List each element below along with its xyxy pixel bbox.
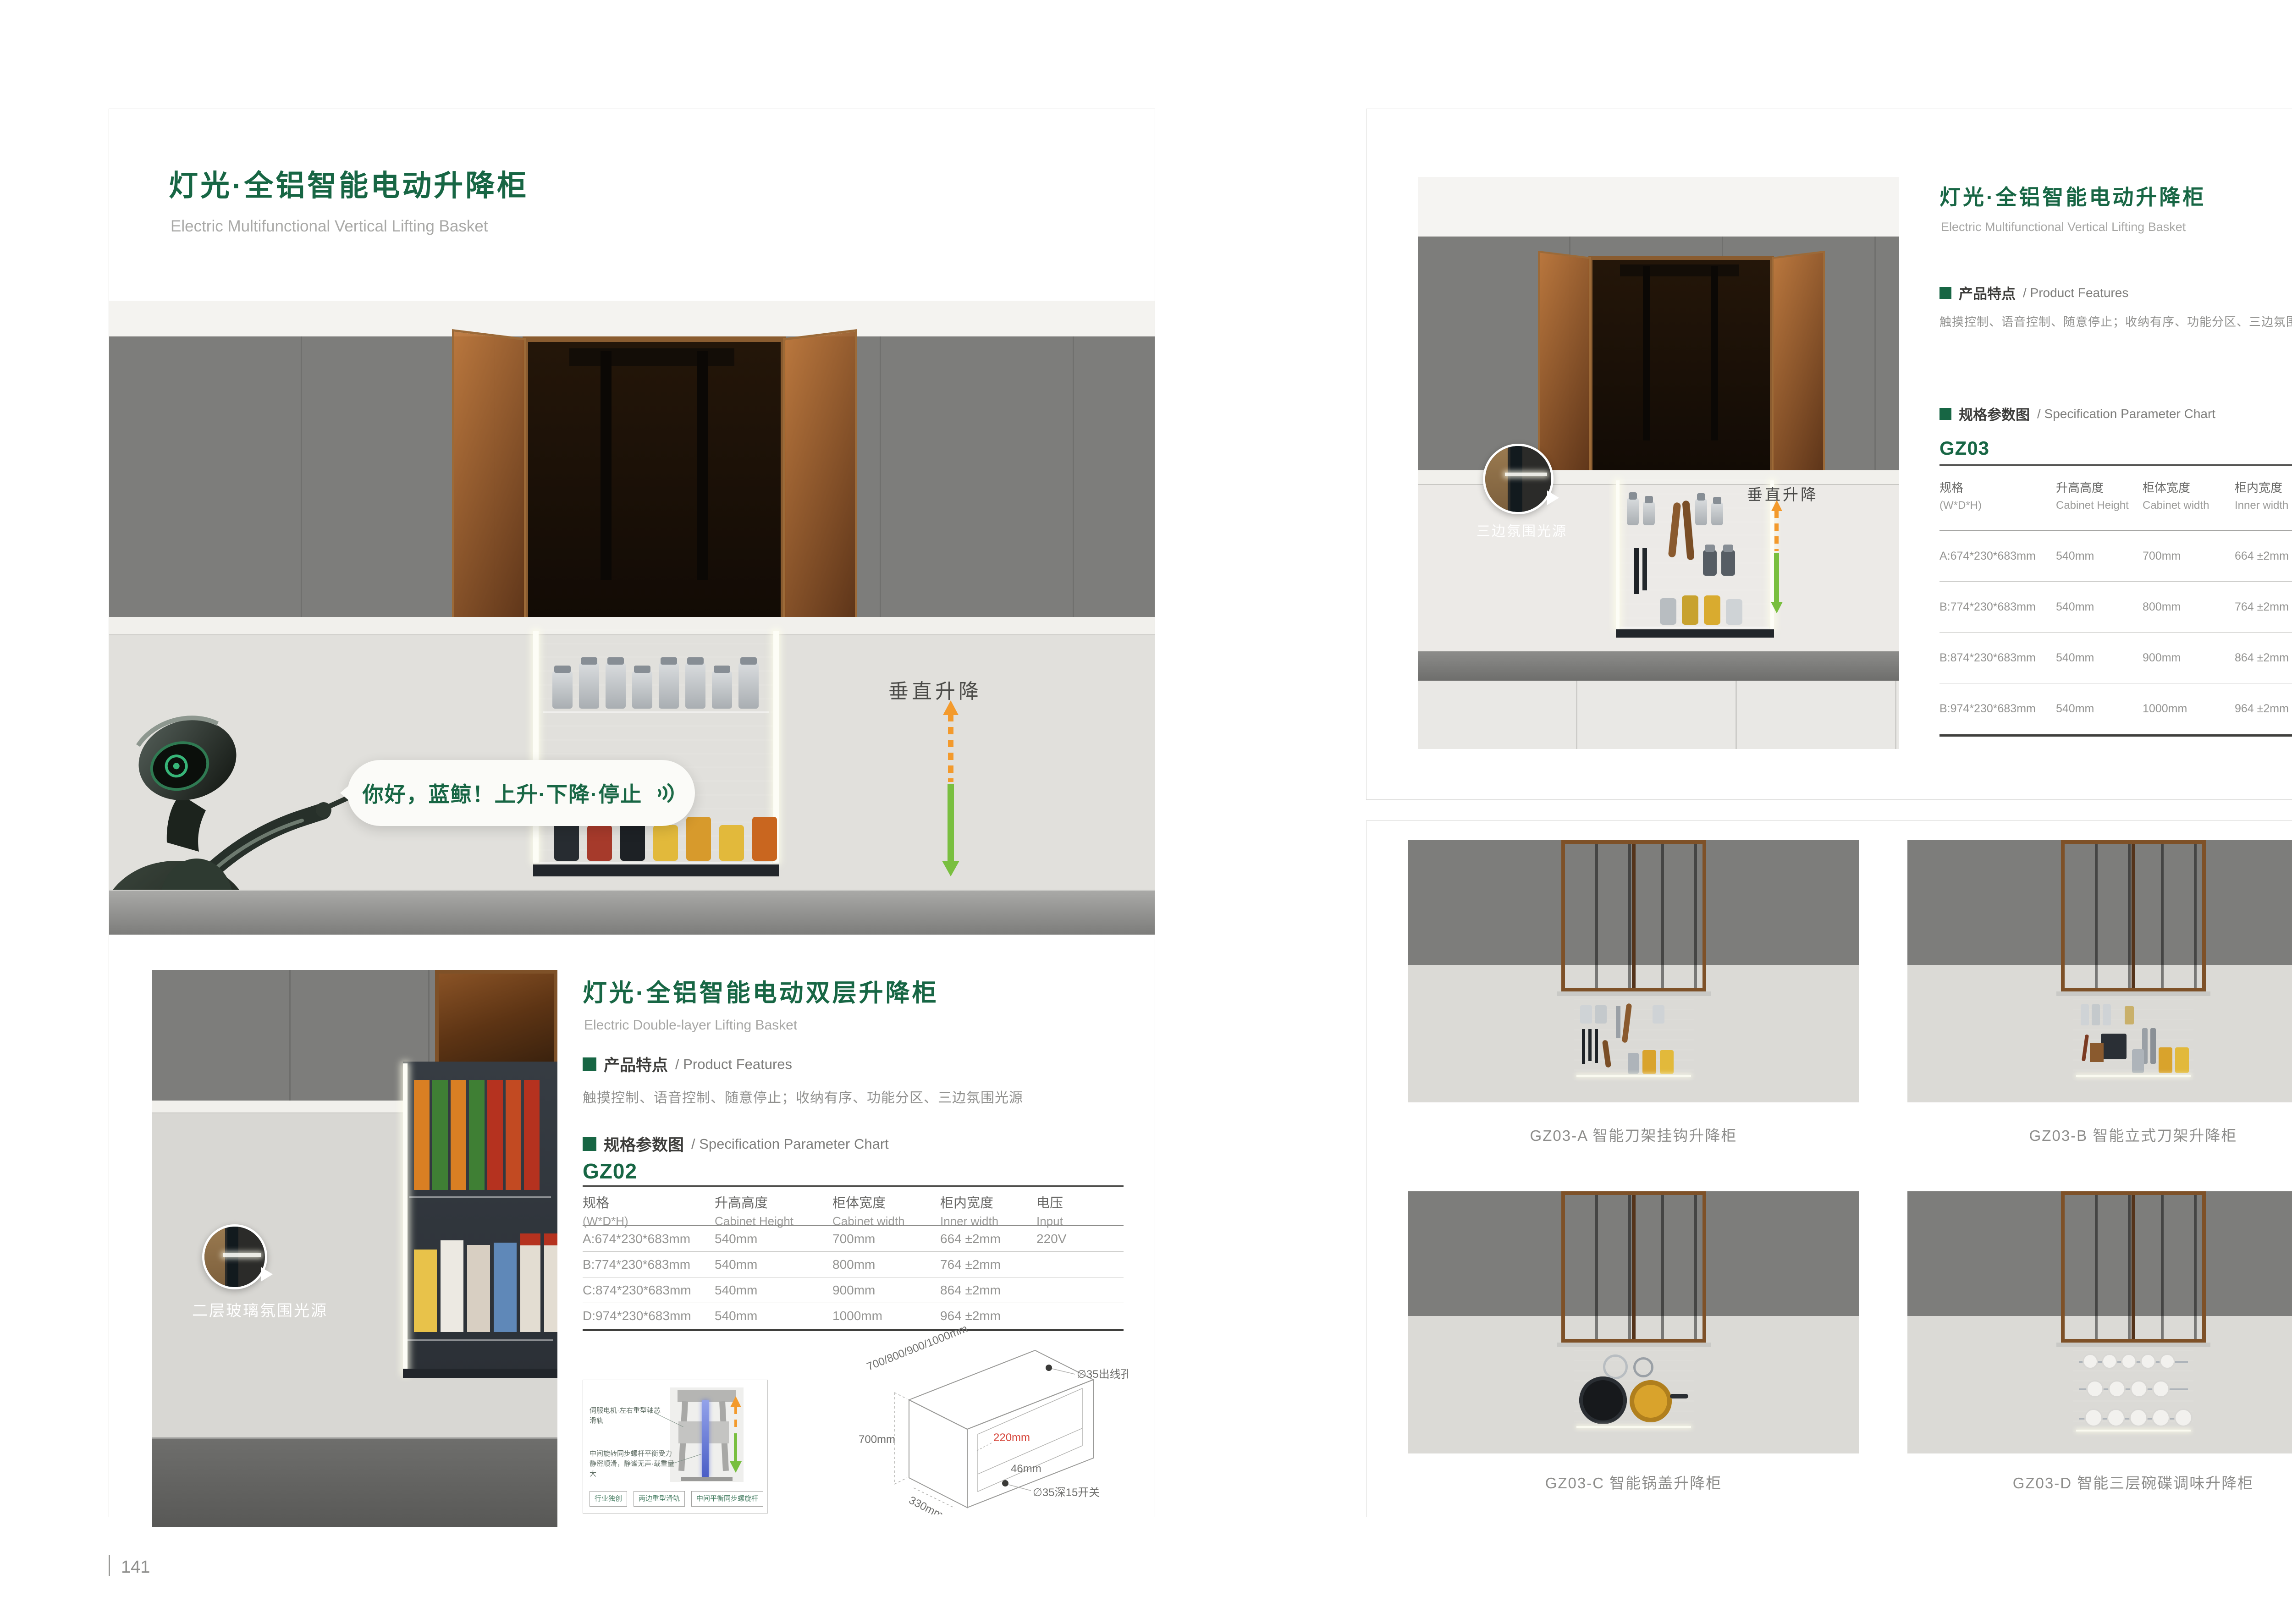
plate-icon bbox=[2160, 1354, 2175, 1369]
mech-tags: 行业独创 两边重型滑轨 中间平衡同步螺旋杆 bbox=[590, 1491, 763, 1507]
col-header: 升高高度Cabinet Height bbox=[2056, 479, 2143, 512]
pot-icon bbox=[719, 825, 744, 861]
plate-icon bbox=[2108, 1380, 2126, 1398]
jar-icon bbox=[685, 663, 705, 709]
pan-handle bbox=[1670, 1394, 1688, 1398]
dim-gap-label: 46mm bbox=[1011, 1463, 1041, 1475]
lift-column bbox=[1711, 266, 1718, 440]
glass-shelf bbox=[543, 711, 769, 713]
juice-carton bbox=[432, 1080, 448, 1190]
table-row: B:974*230*683mm540mm1000mm964 ±2mm bbox=[1939, 683, 2292, 734]
mech-label-bottom-1: 中间旋转同步螺杆平衡受力 bbox=[590, 1449, 672, 1459]
knife-icon bbox=[1634, 548, 1639, 594]
grinder-icon bbox=[1703, 550, 1717, 576]
jar-icon bbox=[1627, 498, 1639, 525]
thumb-basket bbox=[403, 1062, 557, 1378]
callout-tail bbox=[261, 1267, 280, 1282]
juice-carton bbox=[520, 1233, 540, 1332]
dim-depth-label: 330mm bbox=[907, 1494, 945, 1514]
pot-icon bbox=[1660, 598, 1676, 625]
spec-header: 规格参数图 / Specification Parameter Chart bbox=[583, 1132, 889, 1156]
photo-callout-label: 三边氛围光源 bbox=[1477, 520, 1567, 540]
juice-row bbox=[414, 1075, 540, 1190]
right-page-bottom: GZ03-A 智能刀架挂钩升降柜 GZ03-B 智能立式刀架升降柜 bbox=[1366, 820, 2292, 1517]
gz03-b-label: GZ03-B 智能立式刀架升降柜 bbox=[1907, 1123, 2292, 1145]
juice-carton bbox=[544, 1233, 557, 1332]
spec-header-cn: 规格参数图 bbox=[604, 1132, 684, 1156]
plate-row bbox=[2084, 1409, 2193, 1427]
tag-badge: 两边重型滑轨 bbox=[634, 1491, 685, 1507]
arrow-up-icon bbox=[948, 714, 953, 782]
glass-cabinet bbox=[1561, 1191, 1706, 1343]
gz02-subtitle: Electric Double-layer Lifting Basket bbox=[584, 1018, 797, 1033]
snack-box bbox=[494, 1243, 517, 1332]
dimension-drawing: 700/800/900/1000mm ∅35出线孔 700mm 220mm 46… bbox=[840, 1323, 1128, 1514]
cabinet-sill bbox=[2056, 991, 2210, 996]
basket-led-left bbox=[533, 631, 539, 863]
snack-box bbox=[467, 1245, 490, 1332]
photo-ceiling bbox=[1418, 177, 1899, 237]
photo-countertop bbox=[1418, 651, 1899, 681]
col-header: 规格(W*D*H) bbox=[1939, 479, 2056, 512]
gz03-photo: 三边氛围光源 垂直升降 bbox=[1418, 177, 1899, 749]
voice-command-text: 你好，蓝鲸！上升·下降·停止 bbox=[363, 778, 643, 808]
juice-carton bbox=[469, 1080, 485, 1190]
arrow-up-icon bbox=[734, 1407, 737, 1430]
features-text: 触摸控制、语音控制、随意停止；收纳有序、功能分区、三边氛围光源 bbox=[583, 1086, 1023, 1107]
gz03-model: GZ03 bbox=[1939, 437, 1989, 459]
pot-lid-icon bbox=[1633, 1357, 1653, 1377]
light-beam bbox=[223, 1253, 262, 1257]
jar-icon bbox=[2175, 1047, 2189, 1073]
col-header: 柜内宽度Inner width bbox=[2235, 479, 2292, 512]
plate-icon bbox=[2086, 1380, 2104, 1398]
features-header-en: / Product Features bbox=[675, 1056, 792, 1073]
table-row: C:874*230*683mm540mm900mm864 ±2mm bbox=[583, 1277, 1124, 1303]
jar-icon bbox=[552, 671, 573, 709]
basket bbox=[2073, 999, 2193, 1080]
arrow-down-icon bbox=[734, 1433, 737, 1462]
basket bbox=[1574, 999, 1694, 1080]
lift-direction-label: 垂直升降 bbox=[888, 675, 982, 704]
table-row: B:774*230*683mm540mm800mm764 ±2mm bbox=[583, 1252, 1124, 1277]
jar-icon bbox=[1643, 501, 1655, 525]
mech-label-top: 伺服电机·左右重型轴芯滑轨 bbox=[590, 1406, 667, 1426]
features-header: 产品特点 / Product Features bbox=[1939, 282, 2128, 303]
cabinet-door-left bbox=[1538, 251, 1591, 480]
callout-tail bbox=[1547, 490, 1566, 505]
plate-icon bbox=[2121, 1354, 2137, 1369]
hero-glass-cabinet bbox=[523, 336, 786, 625]
glass-band bbox=[1510, 446, 1522, 512]
plate-icon bbox=[2152, 1409, 2170, 1427]
spec-header: 规格参数图 / Specification Parameter Chart bbox=[1939, 403, 2215, 424]
basket bbox=[1574, 1350, 1694, 1431]
pot-icon bbox=[1704, 595, 1720, 625]
screw-column bbox=[702, 1400, 709, 1477]
lift-column bbox=[697, 351, 708, 580]
hero-ceiling bbox=[109, 301, 1155, 336]
sound-wave-icon bbox=[651, 779, 680, 807]
gz02-title: 灯光·全铝智能电动双层升降柜 bbox=[583, 974, 939, 1008]
arrow-down-icon bbox=[1774, 553, 1779, 602]
pan-icon bbox=[1579, 1376, 1627, 1424]
wood-spatula bbox=[1622, 1003, 1632, 1043]
gz03-c-label: GZ03-C 智能锅盖升降柜 bbox=[1408, 1471, 1859, 1493]
wood-spatula bbox=[1602, 1040, 1611, 1068]
col-header: 柜内宽度Inner width bbox=[940, 1192, 1036, 1228]
jar-icon bbox=[1660, 1050, 1674, 1074]
juice-carton bbox=[506, 1080, 521, 1190]
hero-countertop bbox=[109, 890, 1155, 935]
plate-icon bbox=[2174, 1409, 2193, 1427]
jar-icon bbox=[579, 663, 599, 709]
gz03-b-photo bbox=[1907, 840, 2292, 1102]
jar-icon bbox=[1653, 1005, 1664, 1024]
glass-shelf bbox=[540, 862, 772, 864]
basket-jar-row bbox=[552, 657, 759, 709]
col-header: 柜体宽度Cabinet width bbox=[2143, 479, 2235, 512]
green-square-icon bbox=[1939, 287, 1951, 299]
knife-icon bbox=[1642, 548, 1647, 590]
spec-header-en: / Specification Parameter Chart bbox=[2037, 407, 2215, 421]
gold-pan-icon bbox=[1630, 1380, 1672, 1422]
mechanism-detail-box: 伺服电机·左右重型轴芯滑轨 中间旋转同步螺杆平衡受力 静密顺滑，静谧无声·载重量… bbox=[583, 1380, 768, 1514]
knife-icon bbox=[1582, 1029, 1585, 1064]
glass-shelf bbox=[1620, 627, 1769, 628]
glass-shelf bbox=[409, 1196, 551, 1198]
pot-icon bbox=[653, 825, 678, 861]
plate-row bbox=[2083, 1354, 2175, 1369]
jar-icon bbox=[738, 663, 759, 709]
pot-lid-icon bbox=[1603, 1354, 1628, 1379]
bottle-icon bbox=[2092, 1004, 2100, 1025]
dim-switch-label: ∅35深15开关 bbox=[1033, 1486, 1100, 1499]
thumb-callout-label: 二层玻璃氛围光源 bbox=[192, 1298, 328, 1321]
bottle-icon bbox=[2103, 1004, 2111, 1025]
tag-badge: 行业独创 bbox=[590, 1491, 627, 1507]
jar-icon bbox=[1628, 1053, 1639, 1074]
right-page-title: 灯光·全铝智能电动升降柜 bbox=[1939, 181, 2206, 211]
dim-height-label: 700mm bbox=[859, 1433, 895, 1446]
wood-panel bbox=[1485, 446, 1508, 512]
left-page-subtitle: Electric Multifunctional Vertical Liftin… bbox=[171, 217, 488, 236]
lift-motor bbox=[569, 348, 734, 366]
table-row: A:674*230*683mm540mm700mm664 ±2mm220V bbox=[1939, 531, 2292, 582]
detail-callout bbox=[202, 1224, 267, 1289]
right-page-top: 三边氛围光源 垂直升降 灯光·全铝智能电动升降柜 Electric Multif… bbox=[1366, 109, 2292, 800]
green-square-icon bbox=[583, 1057, 596, 1071]
arrow-down-icon bbox=[948, 784, 954, 863]
cabinet-sill bbox=[1557, 991, 1711, 996]
plate-row bbox=[2086, 1380, 2170, 1398]
wood-panel bbox=[204, 1227, 225, 1287]
knife-icon bbox=[2082, 1035, 2089, 1062]
basket-pot-row bbox=[1660, 595, 1742, 625]
jar-icon bbox=[1580, 1005, 1592, 1024]
features-header: 产品特点 / Product Features bbox=[583, 1052, 792, 1076]
juice-carton bbox=[524, 1080, 540, 1190]
features-text: 触摸控制、语音控制、随意停止；收纳有序、功能分区、三边氛围光源 bbox=[1939, 313, 2292, 330]
snack-box bbox=[441, 1240, 463, 1332]
plate-icon bbox=[2083, 1354, 2098, 1369]
gz03-d-photo bbox=[1907, 1191, 2292, 1453]
pot-icon bbox=[686, 817, 711, 861]
hero-photo: 你好，蓝鲸！上升·下降·停止 垂直升降 bbox=[109, 301, 1155, 935]
gz03-d-label: GZ03-D 智能三层碗碟调味升降柜 bbox=[1907, 1471, 2292, 1493]
right-page-subtitle: Electric Multifunctional Vertical Liftin… bbox=[1941, 220, 2186, 234]
features-header-cn: 产品特点 bbox=[604, 1052, 668, 1076]
left-page: 灯光·全铝智能电动升降柜 Electric Multifunctional Ve… bbox=[109, 109, 1155, 1517]
photo-glass-cabinet bbox=[1588, 256, 1774, 475]
basket-led-left bbox=[403, 1063, 408, 1374]
col-header: 升高高度Cabinet Height bbox=[715, 1192, 832, 1228]
plate-icon bbox=[2140, 1354, 2156, 1369]
grinder-row bbox=[1703, 548, 1735, 576]
left-page-title: 灯光·全铝智能电动升降柜 bbox=[169, 162, 529, 204]
snack-box bbox=[414, 1250, 437, 1332]
green-square-icon bbox=[583, 1137, 596, 1151]
gz03-a-photo bbox=[1408, 840, 1859, 1102]
basket-led-left bbox=[1616, 480, 1620, 629]
features-header-cn: 产品特点 bbox=[1959, 282, 2016, 303]
tag-badge: 中间平衡同步螺旋杆 bbox=[691, 1491, 763, 1507]
basket-tray bbox=[533, 864, 779, 876]
wood-block bbox=[2090, 1043, 2104, 1062]
pot-icon bbox=[587, 825, 612, 861]
bottle-icon bbox=[2125, 1006, 2134, 1024]
dim-width-range: 700/800/900/1000mm bbox=[865, 1323, 969, 1373]
dim-inner-label: 220mm bbox=[993, 1431, 1030, 1444]
jar-icon bbox=[606, 663, 626, 709]
pot-icon bbox=[1682, 595, 1698, 625]
table-row: B:874*230*683mm540mm900mm864 ±2mm bbox=[1939, 633, 2292, 683]
hero-basket bbox=[533, 629, 779, 876]
snack-row bbox=[414, 1227, 557, 1332]
glass-cabinet bbox=[2061, 840, 2206, 991]
detail-callout bbox=[1483, 444, 1554, 514]
basket-tray bbox=[1616, 629, 1774, 638]
left-folio-bar bbox=[109, 1555, 110, 1576]
plate-icon bbox=[2130, 1380, 2148, 1398]
features-header-en: / Product Features bbox=[2023, 286, 2128, 300]
lift-direction-label: 垂直升降 bbox=[1747, 482, 1818, 505]
table-header-row: 规格(W*D*H) 升高高度Cabinet Height 柜体宽度Cabinet… bbox=[1939, 466, 2292, 531]
lift-column bbox=[601, 351, 612, 580]
spec-header-cn: 规格参数图 bbox=[1959, 403, 2030, 424]
plate-icon bbox=[2084, 1409, 2103, 1427]
col-header: 柜体宽度Cabinet width bbox=[832, 1192, 940, 1228]
juice-carton bbox=[414, 1080, 430, 1190]
glass-cabinet bbox=[2061, 1191, 2206, 1343]
jar-icon bbox=[659, 663, 679, 709]
arrow-up-icon bbox=[1774, 511, 1779, 551]
jar-icon bbox=[1642, 1050, 1656, 1074]
jar-icon bbox=[1595, 1005, 1607, 1024]
pot-icon bbox=[1726, 599, 1742, 625]
jar-icon bbox=[1695, 499, 1707, 525]
table-row: A:674*230*683mm540mm700mm664 ±2mm220V bbox=[583, 1226, 1124, 1252]
left-page-number: 141 bbox=[121, 1558, 150, 1577]
gz03-c-photo bbox=[1408, 1191, 1859, 1453]
col-header: 规格(W*D*H) bbox=[583, 1192, 715, 1228]
steel-tool bbox=[2150, 1028, 2156, 1064]
green-square-icon bbox=[1939, 408, 1951, 420]
plate-icon bbox=[2107, 1409, 2125, 1427]
jar-icon bbox=[2132, 1049, 2144, 1073]
cabinet-door-right bbox=[1772, 251, 1825, 480]
plate-icon bbox=[2129, 1409, 2148, 1427]
lift-column bbox=[1643, 266, 1650, 440]
basket-tray bbox=[403, 1369, 557, 1378]
plate-icon bbox=[2152, 1380, 2170, 1398]
mech-label-bottom-2: 静密顺滑，静谧无声·载重量大 bbox=[590, 1459, 677, 1479]
gz03-a-label: GZ03-A 智能刀架挂钩升降柜 bbox=[1408, 1123, 1859, 1145]
gz03-spec-table: 规格(W*D*H) 升高高度Cabinet Height 柜体宽度Cabinet… bbox=[1939, 464, 2292, 737]
cabinet-sill bbox=[2056, 1343, 2210, 1347]
jar-icon bbox=[1711, 502, 1723, 525]
grinder-icon bbox=[1721, 550, 1735, 576]
jar-icon bbox=[632, 671, 652, 709]
juice-carton bbox=[487, 1080, 503, 1190]
foot-bar bbox=[681, 1477, 733, 1481]
table-header-row: 规格(W*D*H) 升高高度Cabinet Height 柜体宽度Cabinet… bbox=[583, 1187, 1124, 1226]
table-row: B:774*230*683mm540mm800mm764 ±2mm bbox=[1939, 582, 2292, 633]
lift-motor bbox=[1620, 264, 1739, 276]
cabinet-sill bbox=[1557, 1343, 1711, 1347]
knife-icon bbox=[1588, 1029, 1592, 1061]
glass-shelf bbox=[408, 1339, 553, 1341]
glass-cabinet bbox=[1561, 840, 1706, 991]
jar-icon bbox=[2159, 1047, 2172, 1073]
knife-icon bbox=[1595, 1029, 1598, 1063]
spec-header-en: / Specification Parameter Chart bbox=[691, 1136, 889, 1152]
cabinet-door-left bbox=[452, 329, 526, 632]
jar-icon bbox=[712, 671, 732, 709]
photo-base-cabinets bbox=[1418, 681, 1899, 749]
knife-block bbox=[2101, 1034, 2127, 1059]
bottle-icon bbox=[2081, 1004, 2089, 1025]
gz02-model: GZ02 bbox=[583, 1159, 637, 1184]
mechanism-figure bbox=[670, 1387, 744, 1482]
plate-icon bbox=[2102, 1354, 2117, 1369]
gz02-photo: 二层玻璃氛围光源 bbox=[152, 970, 557, 1527]
thumb-countertop bbox=[152, 1437, 557, 1527]
basket bbox=[2073, 1350, 2193, 1435]
cabinet-door-right bbox=[783, 329, 857, 632]
gz02-spec-table: 规格(W*D*H) 升高高度Cabinet Height 柜体宽度Cabinet… bbox=[583, 1185, 1124, 1331]
catalog-spread: 灯光·全铝智能电动升降柜 Electric Multifunctional Ve… bbox=[0, 0, 2292, 1624]
hook-tool bbox=[1616, 1006, 1620, 1038]
juice-carton bbox=[451, 1080, 466, 1190]
pot-icon bbox=[752, 817, 777, 861]
col-header: 电压Input bbox=[1036, 1192, 1124, 1228]
voice-bubble: 你好，蓝鲸！上升·下降·停止 bbox=[347, 760, 695, 826]
dim-hole-label: ∅35出线孔 bbox=[1077, 1368, 1128, 1381]
light-beam bbox=[1505, 473, 1547, 476]
